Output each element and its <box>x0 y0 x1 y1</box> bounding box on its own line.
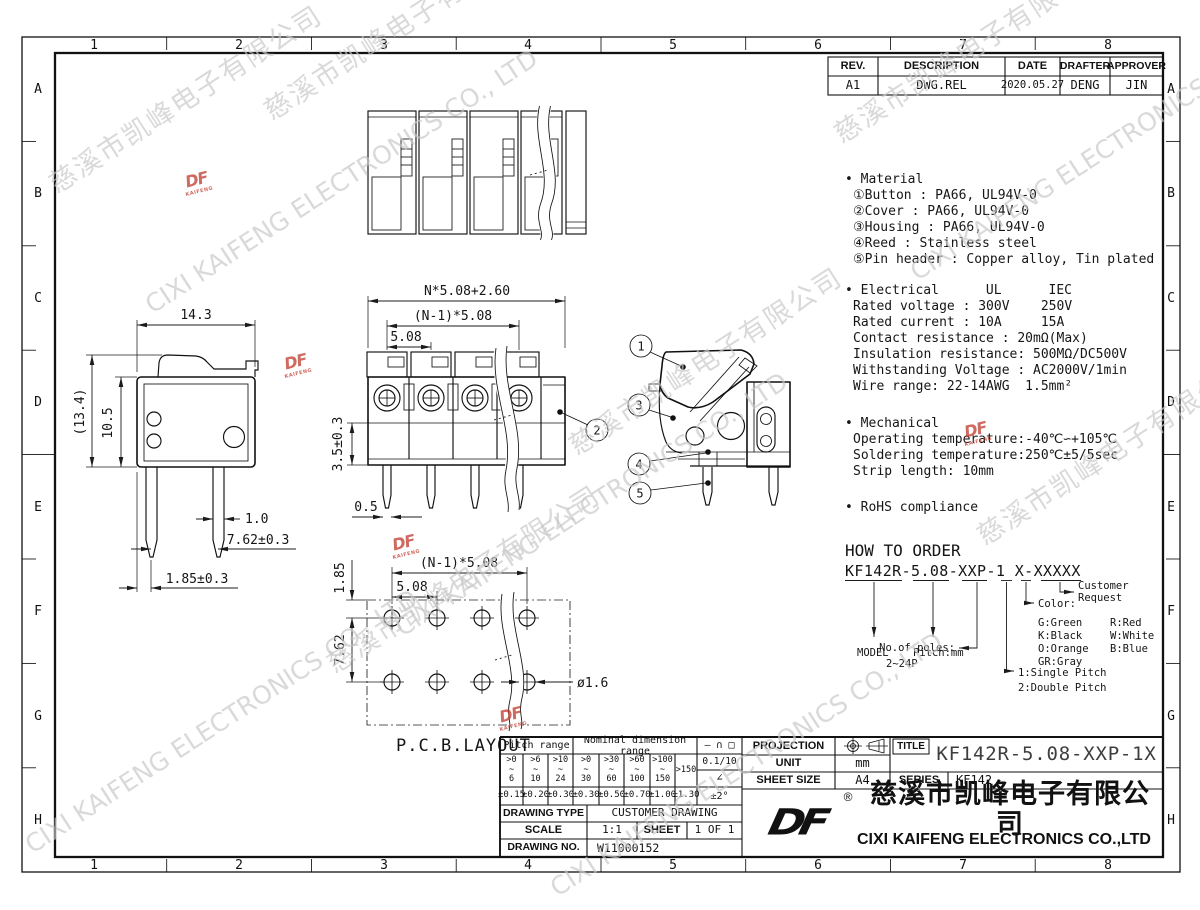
svg-text:H: H <box>1167 813 1175 828</box>
tol-range-1: >0 ~ 6 <box>500 754 523 787</box>
sheet-label: SHEET <box>637 822 687 839</box>
drawing-no-label: DRAWING NO. <box>500 839 587 857</box>
rev-header-drafter: DRAFTER <box>1060 57 1110 76</box>
svg-text:2: 2 <box>235 858 243 873</box>
svg-text:1: 1 <box>90 858 98 873</box>
dim-side-width: 14.3 <box>180 308 211 323</box>
balloon-4: 4 <box>635 458 642 472</box>
material-cover: ②Cover : PA66, UL94V-0 <box>853 204 1029 219</box>
section-view: 1 3 4 5 <box>628 335 790 505</box>
svg-text:6: 6 <box>814 38 822 53</box>
svg-text:A: A <box>1167 82 1175 97</box>
title-label: TITLE <box>893 739 929 754</box>
drawing-title: KF142R-5.08-XXP-1X <box>930 737 1163 771</box>
projection-symbol <box>844 738 888 754</box>
rev-approver: JIN <box>1110 76 1163 95</box>
tol-symbols-header: — ∩ □ <box>697 737 742 754</box>
svg-text:4: 4 <box>524 858 532 873</box>
order-code: KF142R-5.08-XXP-1 X-XXXXX <box>845 562 1081 580</box>
tol-range-6: >60 ~ 100 <box>624 754 650 787</box>
tol-range-4: >0 ~ 30 <box>573 754 599 787</box>
svg-text:D: D <box>1167 395 1175 410</box>
tol-angle-symbol: ∠ <box>697 770 742 787</box>
scale-value: 1:1 <box>587 822 637 839</box>
unit-value: mm <box>835 755 890 772</box>
svg-text:5: 5 <box>669 38 677 53</box>
mechanical-soldering: Soldering temperature:250℃±5/5sec <box>853 448 1118 463</box>
pcb-layout: (N-1)*5.08 5.08 1.85 7.62 ø1.6 P.C.B.LAY… <box>333 556 608 756</box>
dim-side-body-height: 10.5 <box>101 407 116 438</box>
dim-side-pin-pitch: 7.62±0.3 <box>227 533 290 548</box>
rev-value: A1 <box>828 76 878 95</box>
svg-text:G: G <box>34 709 42 724</box>
svg-text:B: B <box>34 186 42 201</box>
order-color-label: Color: <box>1038 598 1076 610</box>
dim-front-centers: (N-1)*5.08 <box>414 309 492 324</box>
rev-header-approver: APPROVER <box>1110 57 1163 76</box>
drawing-sheet: 12 34 56 78 12 34 56 78 AB CD EF GH AB C… <box>0 0 1200 910</box>
svg-text:6: 6 <box>814 858 822 873</box>
svg-text:H: H <box>34 813 42 828</box>
electrical-current: Rated current : 10A 15A <box>853 315 1064 330</box>
dim-side-offset: 1.85±0.3 <box>166 572 229 587</box>
svg-text:F: F <box>34 604 42 619</box>
sheet-value: 1 OF 1 <box>687 822 742 839</box>
tol-value-1: ±0.15 <box>500 787 523 805</box>
balloon-1: 1 <box>637 340 644 354</box>
svg-text:2: 2 <box>235 38 243 53</box>
svg-text:5: 5 <box>669 858 677 873</box>
dim-side-pin-width: 1.0 <box>245 512 268 527</box>
company-logo: DF <box>750 797 842 847</box>
tol-range-5: >30 ~ 60 <box>599 754 624 787</box>
rev-description: DWG.REL <box>878 76 1005 95</box>
material-button: ①Button : PA66, UL94V-0 <box>853 188 1037 203</box>
rev-header-rev: REV. <box>828 57 878 76</box>
order-color-orange: O:Orange <box>1038 643 1089 655</box>
order-customer-2: Request <box>1078 592 1122 604</box>
dim-pcb-row-pitch: 7.62 <box>333 634 348 665</box>
svg-text:1: 1 <box>90 38 98 53</box>
order-poles-range: 2~24P <box>886 658 918 670</box>
svg-text:B: B <box>1167 186 1175 201</box>
svg-text:3: 3 <box>380 38 388 53</box>
order-double-pitch: 2:Double Pitch <box>1018 682 1107 694</box>
registered-mark: ® <box>840 791 856 805</box>
electrical-wire-range: Wire range: 22-14AWG 1.5mm² <box>853 379 1072 394</box>
rev-drafter: DENG <box>1060 76 1110 95</box>
electrical-contact-res: Contact resistance : 20mΩ(Max) <box>853 331 1088 346</box>
order-color-black: K:Black <box>1038 630 1083 642</box>
svg-text:E: E <box>34 500 42 515</box>
tol-range-7: >100 ~ 150 <box>650 754 675 787</box>
tol-range-3: >10 ~ 24 <box>548 754 573 787</box>
electrical-heading: • Electrical UL IEC <box>845 283 1072 298</box>
rev-date: 2020.05.27 <box>1005 76 1060 95</box>
dim-front-pin-width: 0.5 <box>354 500 377 515</box>
tol-range-8: >150 <box>675 754 697 787</box>
material-heading: • Material <box>845 172 923 187</box>
tol-nominal-header: Nominal dimension range <box>573 737 697 754</box>
dim-front-pitch: 5.08 <box>390 330 421 345</box>
dim-side-total-height: (13.4) <box>73 389 88 436</box>
svg-text:E: E <box>1167 500 1175 515</box>
tol-fine: 0.1/10 <box>697 754 742 770</box>
balloon-2: 2 <box>593 424 600 438</box>
dim-pcb-centers: (N-1)*5.08 <box>420 556 498 571</box>
order-color-blue: B:Blue <box>1110 643 1148 655</box>
electrical-voltage: Rated voltage : 300V 250V <box>853 299 1072 314</box>
material-reed: ④Reed : Stainless steel <box>853 236 1037 251</box>
mechanical-heading: • Mechanical <box>845 416 939 431</box>
rohs-line: • RoHS compliance <box>845 500 978 515</box>
front-view: N*5.08+2.60 (N-1)*5.08 5.08 3.5±0.3 0.5 … <box>331 284 608 517</box>
dim-pcb-hole-dia: ø1.6 <box>577 676 608 691</box>
tol-value-4: ±0.30 <box>573 787 599 805</box>
svg-text:3: 3 <box>380 858 388 873</box>
order-poles-label: No.of poles: <box>879 642 955 654</box>
tol-angle-value: ±2° <box>697 787 742 805</box>
svg-text:7: 7 <box>959 38 967 53</box>
tol-range-2: >6 ~ 10 <box>523 754 548 787</box>
balloon-3: 3 <box>635 399 642 413</box>
tol-value-6: ±0.70 <box>624 787 650 805</box>
svg-text:7: 7 <box>959 858 967 873</box>
tol-value-2: ±0.20 <box>523 787 548 805</box>
order-color-green: G:Green <box>1038 617 1082 629</box>
scale-label: SCALE <box>500 822 587 839</box>
tol-pitch-header: Pitch range <box>500 737 573 754</box>
tol-value-8: ±1.30 <box>675 787 697 805</box>
svg-text:G: G <box>1167 709 1175 724</box>
drawing-type-label: DRAWING TYPE <box>500 805 587 822</box>
dim-front-total-width: N*5.08+2.60 <box>424 284 510 299</box>
dim-front-mount-height: 3.5±0.3 <box>331 417 346 472</box>
top-view <box>368 106 586 240</box>
company-name-en: CIXI KAIFENG ELECTRONICS CO.,LTD <box>857 829 1163 851</box>
tol-value-3: ±0.30 <box>548 787 573 805</box>
unit-label: UNIT <box>742 755 835 772</box>
sheet-size-label: SHEET SIZE <box>742 772 835 789</box>
electrical-insulation-res: Insulation resistance: 500MΩ/DC500V <box>853 347 1127 362</box>
svg-text:8: 8 <box>1104 38 1112 53</box>
how-to-order-title: HOW TO ORDER <box>845 541 961 560</box>
balloon-5: 5 <box>636 487 643 501</box>
svg-text:A: A <box>34 82 42 97</box>
dim-pcb-row-offset: 1.85 <box>333 562 348 593</box>
svg-text:8: 8 <box>1104 858 1112 873</box>
rev-header-description: DESCRIPTION <box>878 57 1005 76</box>
projection-label: PROJECTION <box>742 737 835 755</box>
material-housing: ③Housing : PA66, UL94V-0 <box>853 220 1045 235</box>
mechanical-strip: Strip length: 10mm <box>853 464 994 479</box>
svg-text:F: F <box>1167 604 1175 619</box>
order-color-red: R:Red <box>1110 617 1142 629</box>
tol-value-5: ±0.50 <box>599 787 624 805</box>
order-customer-1: Customer <box>1078 580 1129 592</box>
svg-text:D: D <box>34 395 42 410</box>
side-view: 14.3 (13.4) 10.5 1.0 7.62±0.3 1.85±0.3 <box>73 308 296 592</box>
drawing-type-value: CUSTOMER DRAWING <box>587 805 742 822</box>
svg-text:4: 4 <box>524 38 532 53</box>
drawing-no-value: W11000152 <box>587 839 752 857</box>
how-to-order: HOW TO ORDER KF142R-5.08-XXP-1 X-XXXXX M… <box>845 541 1154 694</box>
order-color-white: W:White <box>1110 630 1154 642</box>
rev-header-date: DATE <box>1005 57 1060 76</box>
dim-pcb-pitch: 5.08 <box>396 580 427 595</box>
electrical-withstanding: Withstanding Voltage : AC2000V/1min <box>853 363 1127 378</box>
order-color-gray: GR:Gray <box>1038 656 1082 668</box>
order-single-pitch: 1:Single Pitch <box>1018 667 1107 679</box>
material-pin-header: ⑤Pin header : Copper alloy, Tin plated <box>853 252 1154 267</box>
company-name-zh: 慈溪市凯峰电子有限公司 <box>857 792 1163 828</box>
svg-text:C: C <box>34 291 42 306</box>
svg-text:C: C <box>1167 291 1175 306</box>
tol-value-7: ±1.00 <box>650 787 675 805</box>
